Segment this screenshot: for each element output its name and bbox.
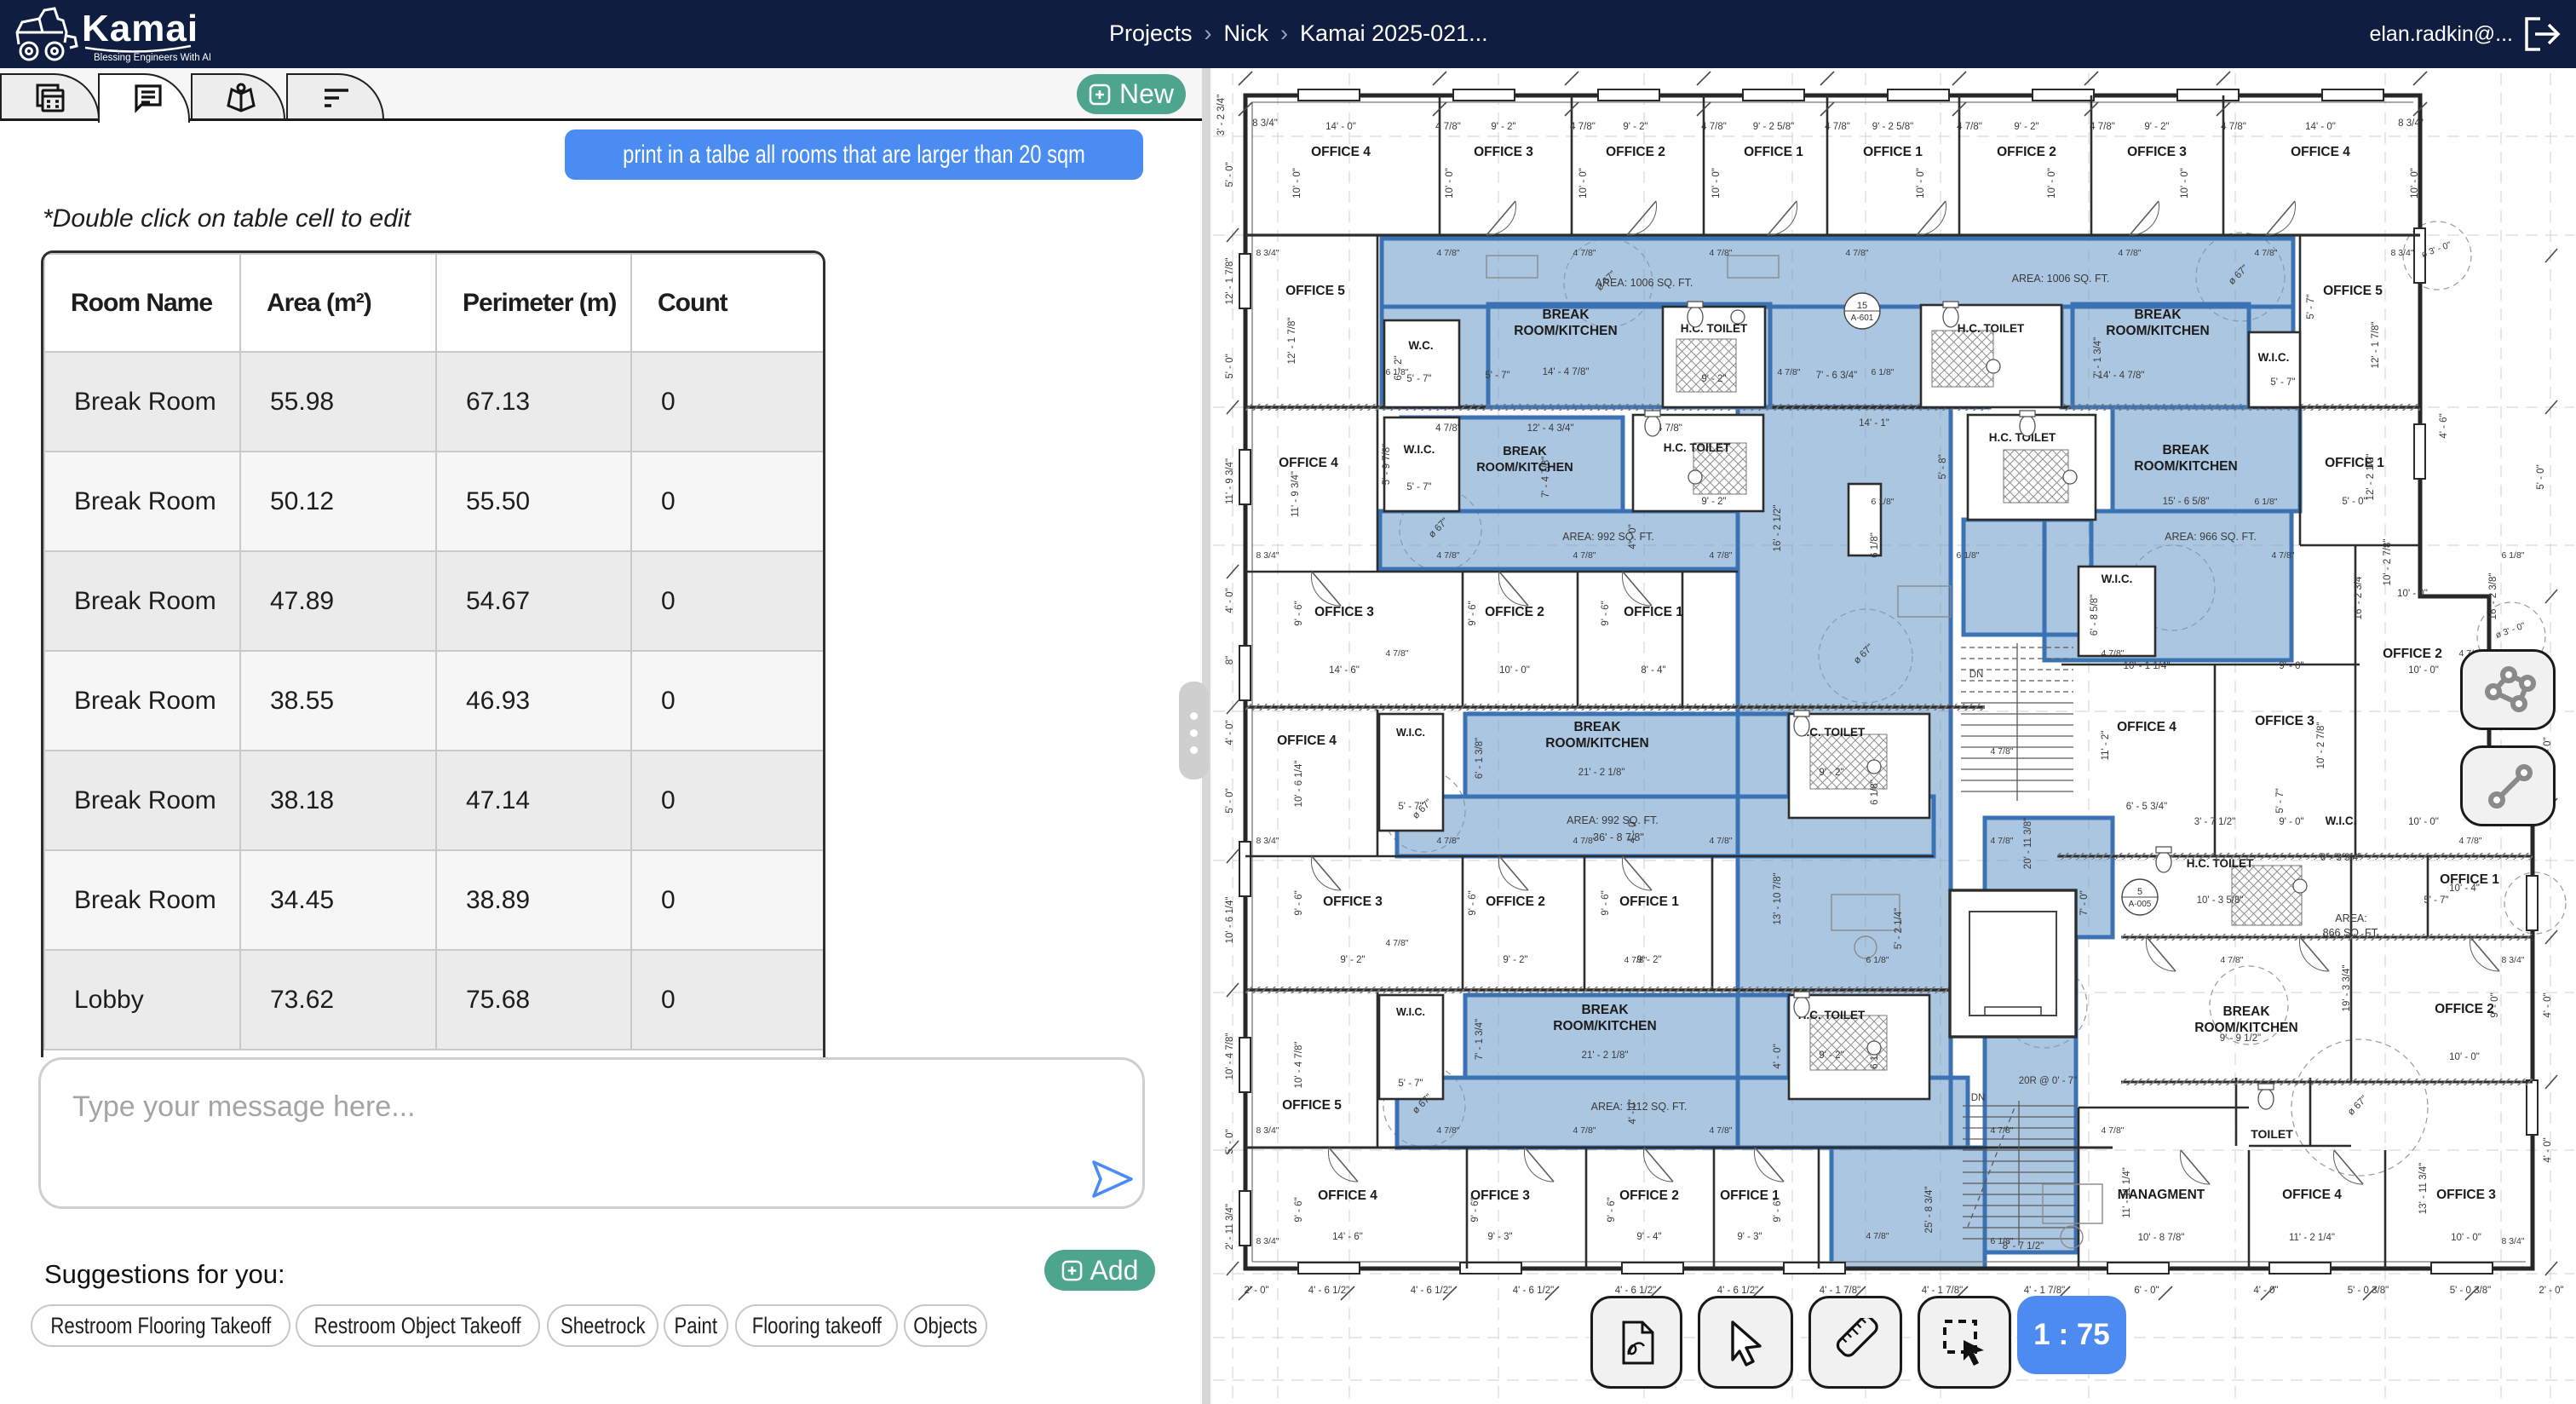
svg-text:BREAK: BREAK: [2162, 443, 2210, 457]
svg-text:4' - 0": 4' - 0": [1628, 1099, 1638, 1124]
svg-text:5' - 7": 5' - 7": [1485, 371, 1509, 381]
svg-text:4' - 0": 4' - 0": [1225, 588, 1235, 613]
svg-text:5' - 7": 5' - 7": [2424, 895, 2448, 906]
svg-text:6 1/8": 6 1/8": [1866, 955, 1889, 965]
svg-text:ROOM/KITCHEN: ROOM/KITCHEN: [2134, 459, 2237, 474]
svg-text:4 7/8": 4 7/8": [1573, 248, 1596, 258]
svg-text:12' - 1 7/8": 12' - 1 7/8": [1225, 258, 1235, 305]
svg-text:A-005: A-005: [2129, 900, 2152, 909]
svg-text:5' - 0": 5' - 0": [2342, 497, 2366, 507]
svg-text:7' - 1 3/4": 7' - 1 3/4": [1475, 1019, 1485, 1060]
svg-text:OFFICE 4: OFFICE 4: [2117, 720, 2176, 734]
svg-text:10' - 2 7/8": 10' - 2 7/8": [2383, 539, 2393, 586]
svg-text:4 7/8": 4 7/8": [2458, 836, 2481, 846]
svg-text:4' - 0": 4' - 0": [1773, 1044, 1783, 1068]
svg-text:4 7/8": 4 7/8": [1866, 1231, 1889, 1241]
svg-text:4 7/8": 4 7/8": [1435, 122, 1461, 132]
svg-text:9' - 6": 9' - 6": [1601, 601, 1611, 625]
svg-text:10' - 1 1/4": 10' - 1 1/4": [2124, 661, 2171, 671]
svg-text:6' - 5 3/4": 6' - 5 3/4": [2126, 802, 2167, 812]
svg-text:4 7/8": 4 7/8": [1435, 423, 1461, 434]
svg-text:BREAK: BREAK: [2134, 308, 2182, 322]
svg-text:5' - 8": 5' - 8": [1938, 454, 1948, 479]
svg-text:9' - 6": 9' - 6": [1607, 1197, 1617, 1222]
svg-text:9' - 2": 9' - 2": [2144, 122, 2169, 132]
svg-text:AREA: 992 SQ. FT.: AREA: 992 SQ. FT.: [1567, 814, 1659, 826]
svg-text:2' - 11 3/4": 2' - 11 3/4": [1225, 1204, 1235, 1250]
svg-text:4 7/8": 4 7/8": [1657, 423, 1682, 434]
svg-text:4 7/8": 4 7/8": [2220, 955, 2243, 965]
svg-text:9' - 0": 9' - 0": [2490, 993, 2500, 1017]
svg-text:4 7/8": 4 7/8": [1573, 836, 1596, 846]
svg-text:ROOM/KITCHEN: ROOM/KITCHEN: [1545, 736, 1648, 751]
svg-text:2' - 0": 2' - 0": [2539, 1286, 2563, 1296]
svg-text:10' - 0": 10' - 0": [2449, 1052, 2480, 1062]
svg-text:4 7/8": 4 7/8": [1385, 938, 1408, 948]
svg-text:W.I.C.: W.I.C.: [2102, 573, 2133, 585]
svg-text:OFFICE 2: OFFICE 2: [1606, 145, 1665, 159]
svg-text:6 1/8": 6 1/8": [1870, 780, 1880, 805]
svg-text:9' - 3": 9' - 3": [1737, 1232, 1762, 1242]
svg-text:OFFICE 2: OFFICE 2: [1486, 895, 1545, 909]
svg-text:8 3/4": 8 3/4": [1256, 248, 1279, 258]
svg-text:W.I.C.: W.I.C.: [1396, 727, 1425, 739]
svg-text:11' - 2 1/4": 11' - 2 1/4": [2289, 1233, 2335, 1243]
svg-text:4 7/8": 4 7/8": [1701, 122, 1727, 132]
svg-text:4' - 1 7/8": 4' - 1 7/8": [2024, 1286, 2065, 1296]
svg-text:OFFICE 5: OFFICE 5: [1282, 1098, 1342, 1113]
svg-text:9' - 6": 9' - 6": [1773, 1197, 1783, 1222]
svg-text:10' - 0": 10' - 0": [2397, 589, 2428, 599]
svg-text:9' - 4": 9' - 4": [1636, 1232, 1661, 1242]
svg-text:OFFICE 3: OFFICE 3: [2436, 1188, 2496, 1202]
svg-text:6' - 0": 6' - 0": [2134, 1286, 2159, 1296]
svg-text:OFFICE 2: OFFICE 2: [1485, 605, 1544, 619]
svg-text:OFFICE 3: OFFICE 3: [2255, 714, 2314, 728]
svg-text:6' - 8 5/8": 6' - 8 5/8": [2090, 595, 2100, 636]
svg-text:5: 5: [2137, 887, 2142, 897]
svg-text:9' - 6": 9' - 6": [1294, 1197, 1304, 1222]
svg-text:OFFICE 5: OFFICE 5: [1285, 284, 1345, 298]
svg-text:Kamai: Kamai: [82, 8, 198, 49]
svg-text:5' - 0": 5' - 0": [1225, 354, 1235, 378]
svg-text:6 1/8": 6 1/8": [1871, 367, 1894, 377]
svg-text:4 7/8": 4 7/8": [1436, 550, 1459, 561]
svg-text:W.I.C.: W.I.C.: [2326, 814, 2357, 827]
svg-text:BREAK: BREAK: [1542, 308, 1590, 322]
svg-text:21' - 2 1/8": 21' - 2 1/8": [1578, 768, 1625, 778]
svg-text:OFFICE 2: OFFICE 2: [1619, 1188, 1679, 1203]
svg-text:9' - 3": 9' - 3": [1487, 1232, 1512, 1242]
svg-text:H.C. TOILET: H.C. TOILET: [1958, 322, 2025, 335]
svg-text:4 7/8": 4 7/8": [2101, 1125, 2124, 1136]
svg-text:4 7/8": 4 7/8": [1990, 746, 2013, 757]
svg-text:12' - 1 7/8": 12' - 1 7/8": [1287, 318, 1297, 365]
svg-text:14' - 4 7/8": 14' - 4 7/8": [1543, 367, 1590, 377]
svg-text:13' - 11 3/4": 13' - 11 3/4": [2418, 1163, 2429, 1214]
svg-text:9' - 6": 9' - 6": [1294, 601, 1304, 625]
svg-text:10' - 0": 10' - 0": [2451, 1233, 2481, 1243]
svg-text:BREAK: BREAK: [1581, 1003, 1629, 1017]
svg-text:5' - 0": 5' - 0": [2536, 464, 2546, 489]
svg-text:12' - 4 3/4": 12' - 4 3/4": [1527, 423, 1574, 434]
svg-text:4 7/8": 4 7/8": [1709, 550, 1732, 561]
svg-text:10' - 6 1/4": 10' - 6 1/4": [1225, 897, 1235, 944]
svg-text:4 7/8": 4 7/8": [1436, 1125, 1459, 1136]
svg-text:9' - 2": 9' - 2": [1623, 122, 1647, 132]
svg-text:4' - 6 1/2": 4' - 6 1/2": [1615, 1286, 1656, 1296]
svg-text:9' - 6": 9' - 6": [1294, 890, 1304, 915]
svg-text:4' - 6 1/2": 4' - 6 1/2": [1308, 1286, 1349, 1296]
svg-text:4 7/8": 4 7/8": [2254, 248, 2277, 258]
svg-text:4' - 0": 4' - 0": [1628, 524, 1638, 549]
svg-text:3' - 2 3/4": 3' - 2 3/4": [1216, 95, 1227, 135]
svg-text:14' - 0": 14' - 0": [1325, 122, 1356, 132]
svg-text:4' - 1 7/8": 4' - 1 7/8": [1820, 1286, 1860, 1296]
svg-text:10' - 0": 10' - 0": [1292, 168, 1302, 199]
svg-text:9' - 2 5/8": 9' - 2 5/8": [1753, 122, 1794, 132]
svg-text:OFFICE 4: OFFICE 4: [1279, 456, 1338, 470]
svg-text:10' - 0": 10' - 0": [1711, 168, 1722, 199]
svg-text:5' - 0": 5' - 0": [1225, 162, 1235, 187]
svg-text:10' - 0": 10' - 0": [1499, 665, 1530, 676]
svg-text:4 7/8": 4 7/8": [1709, 248, 1732, 258]
svg-text:7' - 4 7/8": 7' - 4 7/8": [1541, 457, 1551, 498]
svg-text:AREA: 966 SQ. FT.: AREA: 966 SQ. FT.: [2165, 531, 2257, 543]
svg-text:10' - 4 7/8": 10' - 4 7/8": [1225, 1033, 1235, 1080]
svg-text:W.C.: W.C.: [1408, 339, 1433, 352]
svg-text:8 3/4": 8 3/4": [2501, 955, 2524, 965]
svg-text:4' - 6 1/2": 4' - 6 1/2": [1717, 1286, 1758, 1296]
svg-text:10' - 6 1/4": 10' - 6 1/4": [1294, 761, 1304, 808]
svg-text:10' - 3 5/8": 10' - 3 5/8": [2197, 895, 2244, 906]
svg-text:8' - 4": 8' - 4": [1641, 665, 1665, 676]
svg-text:OFFICE 2: OFFICE 2: [2435, 1002, 2494, 1016]
svg-text:5' - 7": 5' - 7": [2306, 294, 2316, 319]
svg-text:11' - 11 1/4": 11' - 11 1/4": [2122, 1167, 2132, 1218]
svg-text:OFFICE 3: OFFICE 3: [2127, 145, 2187, 159]
svg-text:4' - 6 1/2": 4' - 6 1/2": [1411, 1286, 1452, 1296]
svg-text:10' - 0": 10' - 0": [1445, 168, 1455, 199]
svg-text:6 1/8": 6 1/8": [1990, 1236, 2013, 1246]
svg-text:4' - 0": 4' - 0": [1225, 720, 1235, 745]
svg-text:4 7/8": 4 7/8": [1825, 122, 1850, 132]
svg-text:4 7/8": 4 7/8": [1570, 122, 1596, 132]
svg-text:12' - 2 1/2": 12' - 2 1/2": [2366, 454, 2376, 501]
svg-text:OFFICE 4: OFFICE 4: [2291, 145, 2350, 159]
svg-text:DN: DN: [1971, 1093, 1986, 1103]
svg-text:OFFICE 1: OFFICE 1: [1720, 1188, 1780, 1203]
svg-text:H.C. TOILET: H.C. TOILET: [1664, 441, 1731, 454]
svg-text:7' - 1 3/4": 7' - 1 3/4": [2093, 337, 2103, 378]
svg-text:8 3/4": 8 3/4": [1252, 118, 1278, 129]
svg-text:14' - 4 7/8": 14' - 4 7/8": [2098, 371, 2145, 381]
svg-text:14' - 6": 14' - 6": [1332, 1232, 1363, 1242]
svg-text:8 3/4": 8 3/4": [2390, 248, 2413, 258]
svg-text:9' - 0": 9' - 0": [2279, 661, 2303, 671]
svg-text:9' - 6": 9' - 6": [1468, 890, 1478, 915]
svg-text:8 3/4": 8 3/4": [1256, 1125, 1279, 1136]
svg-text:OFFICE 4: OFFICE 4: [1277, 734, 1337, 748]
svg-text:4 7/8": 4 7/8": [1957, 122, 1982, 132]
svg-text:16' - 2 3/8": 16' - 2 3/8": [2488, 573, 2498, 620]
svg-text:8 3/4": 8 3/4": [2398, 118, 2424, 129]
svg-text:OFFICE 3: OFFICE 3: [1323, 895, 1383, 909]
svg-text:20R @ 0' - 7": 20R @ 0' - 7": [2019, 1076, 2077, 1086]
svg-text:9' - 2": 9' - 2": [1701, 497, 1726, 507]
svg-text:4 7/8": 4 7/8": [2101, 648, 2124, 659]
svg-text:8 3/4": 8 3/4": [1256, 1236, 1279, 1246]
svg-text:4 7/8": 4 7/8": [1709, 1125, 1732, 1136]
svg-text:OFFICE 5: OFFICE 5: [2323, 284, 2383, 298]
svg-text:866 SQ. FT.: 866 SQ. FT.: [2323, 927, 2380, 939]
svg-text:9' - 6": 9' - 6": [1470, 1197, 1481, 1222]
svg-text:4 7/8": 4 7/8": [1573, 550, 1596, 561]
svg-text:W.I.C.: W.I.C.: [1396, 1006, 1425, 1018]
svg-text:OFFICE 4: OFFICE 4: [1311, 145, 1371, 159]
svg-text:W.I.C.: W.I.C.: [1404, 443, 1435, 456]
svg-text:8 3/4": 8 3/4": [2501, 1236, 2524, 1246]
svg-text:11' - 9 3/4": 11' - 9 3/4": [1225, 458, 1235, 504]
svg-text:OFFICE 3: OFFICE 3: [1474, 145, 1533, 159]
svg-text:8 3/4": 8 3/4": [1256, 550, 1279, 561]
svg-text:8 3/4": 8 3/4": [1256, 836, 1279, 846]
svg-text:OFFICE 4: OFFICE 4: [1318, 1188, 1377, 1203]
svg-text:20' - 11 3/8": 20' - 11 3/8": [2023, 818, 2033, 869]
svg-text:9' - 6": 9' - 6": [1601, 890, 1611, 915]
svg-text:10' - 0": 10' - 0": [1916, 168, 1926, 199]
svg-text:13' - 10 7/8": 13' - 10 7/8": [1773, 872, 1783, 924]
svg-text:A-601: A-601: [1851, 314, 1874, 323]
svg-text:5' - 7": 5' - 7": [2270, 377, 2295, 388]
svg-text:5' - 7": 5' - 7": [1406, 374, 1431, 384]
svg-text:15' - 6 5/8": 15' - 6 5/8": [2163, 497, 2210, 507]
svg-text:11' - 2": 11' - 2": [2101, 731, 2111, 761]
svg-text:4' - 0": 4' - 0": [2543, 1137, 2553, 1162]
svg-text:4 7/8": 4 7/8": [1990, 836, 2013, 846]
svg-text:OFFICE 1: OFFICE 1: [1619, 895, 1679, 909]
svg-text:9' - 2": 9' - 2": [1819, 768, 1843, 778]
svg-text:BREAK: BREAK: [2222, 1004, 2270, 1019]
svg-text:Blessing Engineers With AI: Blessing Engineers With AI: [94, 53, 211, 63]
svg-text:5' - 7": 5' - 7": [2275, 788, 2286, 813]
svg-text:6 1/8": 6 1/8": [1956, 550, 1979, 561]
svg-text:10' - 0": 10' - 0": [2180, 168, 2190, 199]
svg-text:4 7/8": 4 7/8": [1436, 248, 1459, 258]
svg-text:6' - 1 3/8": 6' - 1 3/8": [1475, 738, 1485, 779]
svg-text:9' - 2 5/8": 9' - 2 5/8": [1872, 122, 1913, 132]
svg-text:AREA: 992 SQ. FT.: AREA: 992 SQ. FT.: [1562, 531, 1654, 543]
svg-text:9' - 2": 9' - 2": [2014, 122, 2038, 132]
svg-text:9' - 9 1/2": 9' - 9 1/2": [2220, 1033, 2261, 1044]
svg-text:4 7/8": 4 7/8": [2271, 550, 2294, 561]
svg-text:5' - 7": 5' - 7": [1406, 482, 1431, 492]
svg-text:10' - 0": 10' - 0": [2408, 817, 2439, 827]
svg-text:10' - 2 7/8": 10' - 2 7/8": [2316, 722, 2326, 769]
svg-text:TOILET: TOILET: [2251, 1127, 2293, 1141]
svg-text:4' - 0": 4' - 0": [2543, 993, 2553, 1017]
svg-text:ROOM/KITCHEN: ROOM/KITCHEN: [1514, 324, 1617, 338]
svg-text:4 7/8": 4 7/8": [2090, 122, 2115, 132]
svg-text:4' - 6": 4' - 6": [2439, 413, 2449, 438]
svg-text:3' - 7 1/2": 3' - 7 1/2": [2194, 817, 2235, 827]
svg-text:9' - 2": 9' - 2": [1340, 955, 1365, 965]
svg-text:OFFICE 1: OFFICE 1: [1744, 145, 1803, 159]
svg-text:5' - 7": 5' - 7": [1398, 1079, 1423, 1089]
svg-text:4 7/8": 4 7/8": [2118, 248, 2141, 258]
svg-text:25' - 8 3/4": 25' - 8 3/4": [1924, 1187, 1935, 1234]
svg-text:16' - 2 1/2": 16' - 2 1/2": [1773, 505, 1783, 552]
svg-text:4' - 1 7/8": 4' - 1 7/8": [1922, 1286, 1963, 1296]
svg-text:5' - 2 1/4": 5' - 2 1/4": [1894, 908, 1904, 949]
svg-text:ROOM/KITCHEN: ROOM/KITCHEN: [1553, 1019, 1656, 1033]
svg-text:ROOM/KITCHEN: ROOM/KITCHEN: [2106, 324, 2209, 338]
svg-text:10' - 0": 10' - 0": [1578, 168, 1589, 199]
svg-text:BREAK: BREAK: [1573, 720, 1621, 734]
svg-text:10' - 4 7/8": 10' - 4 7/8": [1294, 1042, 1304, 1089]
svg-text:12' - 1 7/8": 12' - 1 7/8": [2371, 322, 2381, 369]
svg-text:11' - 9 3/4": 11' - 9 3/4": [1291, 471, 1301, 517]
svg-text:4 7/8": 4 7/8": [1436, 836, 1459, 846]
svg-text:4 7/8": 4 7/8": [1624, 955, 1647, 965]
svg-text:14' - 1": 14' - 1": [1859, 418, 1889, 429]
svg-text:4 7/8": 4 7/8": [2221, 122, 2246, 132]
svg-text:AREA: 1006 SQ. FT.: AREA: 1006 SQ. FT.: [2012, 273, 2110, 285]
svg-text:10' - 0": 10' - 0": [2408, 665, 2439, 676]
svg-text:7' - 0": 7' - 0": [2079, 890, 2090, 915]
svg-text:OFFICE 1: OFFICE 1: [1624, 605, 1683, 619]
svg-text:AREA:: AREA:: [2335, 912, 2367, 924]
svg-text:10' - 8 7/8": 10' - 8 7/8": [2138, 1233, 2185, 1243]
svg-text:9' - 2": 9' - 2": [1701, 374, 1726, 384]
svg-text:7' - 6 3/4": 7' - 6 3/4": [1816, 371, 1857, 381]
svg-text:OFFICE 2: OFFICE 2: [1997, 145, 2056, 159]
svg-text:4 7/8": 4 7/8": [1385, 648, 1408, 659]
svg-text:14' - 6": 14' - 6": [1329, 665, 1360, 676]
svg-text:15: 15: [1857, 301, 1867, 311]
svg-text:9' - 0": 9' - 0": [2279, 817, 2303, 827]
svg-text:9' - 2": 9' - 2": [1503, 955, 1527, 965]
svg-text:5' - 0": 5' - 0": [1225, 788, 1235, 813]
svg-text:8": 8": [1225, 656, 1235, 665]
svg-text:OFFICE 4: OFFICE 4: [2282, 1188, 2342, 1202]
svg-text:9' - 2": 9' - 2": [1819, 1050, 1843, 1061]
svg-text:10' - 0": 10' - 0": [2047, 168, 2057, 199]
svg-text:6 1/8": 6 1/8": [1870, 532, 1880, 558]
svg-text:4' - 0": 4' - 0": [1628, 818, 1638, 843]
svg-text:6 1/8": 6 1/8": [1871, 497, 1894, 507]
svg-text:OFFICE 1: OFFICE 1: [1863, 145, 1923, 159]
svg-text:4 7/8": 4 7/8": [1573, 1125, 1596, 1136]
svg-text:5' - 9 7/8": 5' - 9 7/8": [1382, 444, 1392, 485]
svg-text:OFFICE 3: OFFICE 3: [1314, 605, 1374, 619]
svg-text:19' - 3 3/4": 19' - 3 3/4": [2342, 965, 2352, 1012]
svg-text:16' - 2 3/4": 16' - 2 3/4": [2354, 573, 2364, 620]
svg-text:OFFICE 2: OFFICE 2: [2383, 647, 2442, 661]
svg-text:6 1/8": 6 1/8": [2501, 550, 2524, 561]
svg-text:BREAK: BREAK: [1503, 445, 1547, 458]
svg-text:H.C. TOILET: H.C. TOILET: [2187, 857, 2254, 870]
svg-text:AREA: 1112 SQ. FT.: AREA: 1112 SQ. FT.: [1591, 1101, 1688, 1113]
svg-text:9' - 6": 9' - 6": [1468, 601, 1478, 625]
svg-text:9' - 2": 9' - 2": [1491, 122, 1515, 132]
svg-text:14' - 0": 14' - 0": [2305, 122, 2336, 132]
svg-text:4 7/8": 4 7/8": [1777, 367, 1800, 377]
svg-text:21' - 2 1/8": 21' - 2 1/8": [1582, 1050, 1629, 1061]
svg-text:4 7/8": 4 7/8": [1709, 836, 1732, 846]
svg-text:4 7/8": 4 7/8": [1845, 248, 1868, 258]
svg-text:10' - 0": 10' - 0": [2410, 168, 2420, 199]
svg-text:DN: DN: [1969, 670, 1984, 680]
svg-text:6' - 3 3/4": 6' - 3 3/4": [2320, 853, 2361, 863]
svg-text:10' - 4": 10' - 4": [2449, 883, 2480, 894]
svg-text:ROOM/KITCHEN: ROOM/KITCHEN: [1476, 461, 1573, 475]
svg-text:6 1/8": 6 1/8": [2254, 497, 2277, 507]
svg-text:6 1/8": 6 1/8": [1385, 367, 1408, 377]
svg-text:W.I.C.: W.I.C.: [2258, 351, 2290, 364]
svg-text:4 7/8": 4 7/8": [1990, 1125, 2013, 1136]
svg-text:4' - 6 1/2": 4' - 6 1/2": [1513, 1286, 1554, 1296]
